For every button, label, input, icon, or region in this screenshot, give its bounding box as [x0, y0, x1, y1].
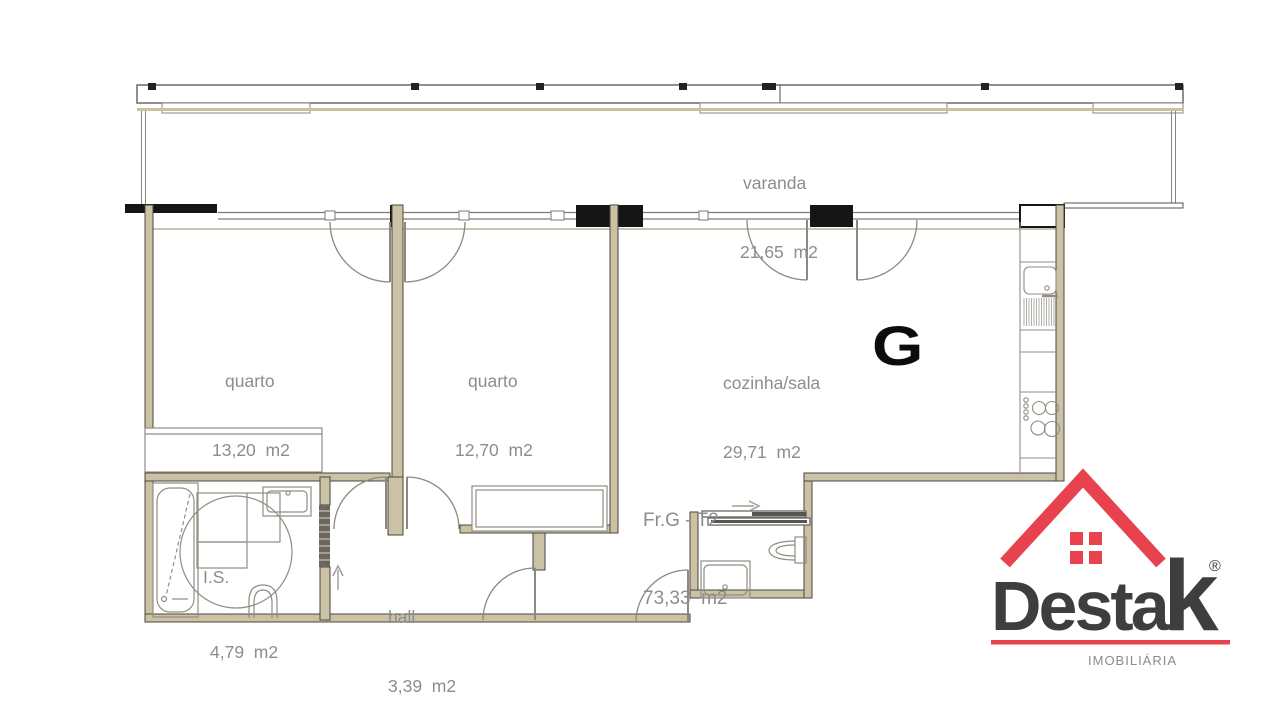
room-name: I.S. — [203, 565, 278, 590]
door-arc-hall-vestibule — [483, 568, 535, 620]
cooktop-icon — [1024, 398, 1060, 437]
room-label-is: I.S. 4,79 m2 — [210, 515, 278, 690]
room-label-hall: hall 3,39 m2 — [388, 560, 456, 720]
logo-roof-icon — [1005, 478, 1161, 563]
floor-plan-drawing: Desta k ® IMOBILIÁRIA — [0, 0, 1280, 720]
door-arc-quarto2-balcony — [405, 222, 465, 282]
bathroom-sink-icon — [263, 487, 311, 516]
logo-tagline: IMOBILIÁRIA — [1088, 653, 1177, 668]
garage-letter: G — [872, 318, 923, 374]
room-label-quarto2: quarto 12,70 m2 — [455, 324, 533, 485]
room-label-cozinha-sala: cozinha/sala 29,71 m2 — [723, 326, 820, 487]
room-area: 29,71 m2 — [723, 441, 820, 464]
fraction-name: Fr.G - T2 — [643, 508, 728, 534]
door-arc-quarto1-hall — [334, 477, 386, 529]
room-area: 4,79 m2 — [210, 640, 278, 665]
room-name: varanda — [743, 172, 818, 195]
logo-registered-mark: ® — [1209, 558, 1221, 575]
kitchen-fixtures — [1020, 222, 1060, 473]
room-name: quarto — [468, 370, 533, 393]
wc-toilet-icon — [769, 537, 806, 563]
room-name: cozinha/sala — [723, 372, 820, 395]
bed-icon — [472, 486, 607, 531]
fraction-label: Fr.G - T2 73,33 m2 — [643, 456, 728, 638]
balcony-railing — [137, 83, 1183, 208]
door-arc-quarto1-balcony — [330, 222, 390, 282]
room-area: 12,70 m2 — [455, 439, 533, 462]
room-label-varanda: varanda 21,65 m2 — [740, 126, 818, 287]
logo-window-icon — [1070, 532, 1102, 564]
entrance-arrow-icon — [732, 501, 759, 511]
room-area: 3,39 m2 — [388, 675, 456, 698]
room-name: quarto — [225, 370, 290, 393]
logo-brand-text: Desta — [991, 567, 1171, 645]
floor-plan: Desta k ® IMOBILIÁRIA varanda 21,65 m2 q… — [0, 0, 1280, 720]
room-area: 13,20 m2 — [212, 439, 290, 462]
sliding-door-bathroom — [319, 505, 330, 567]
door-arc-quarto2-hall — [407, 477, 459, 529]
destak-logo: Desta k ® IMOBILIÁRIA — [991, 478, 1230, 668]
hall-arrow-icon — [333, 566, 343, 590]
logo-underline — [991, 640, 1230, 645]
bathtub-icon — [153, 483, 198, 617]
fraction-area: 73,33 m2 — [643, 586, 728, 612]
logo-brand-k: k — [1163, 540, 1219, 652]
room-label-quarto1: quarto 13,20 m2 — [212, 324, 290, 485]
kitchen-sink-icon — [1024, 267, 1058, 326]
wall-piers — [125, 204, 1064, 227]
room-name: hall — [388, 606, 456, 629]
room-area: 21,65 m2 — [740, 241, 818, 264]
